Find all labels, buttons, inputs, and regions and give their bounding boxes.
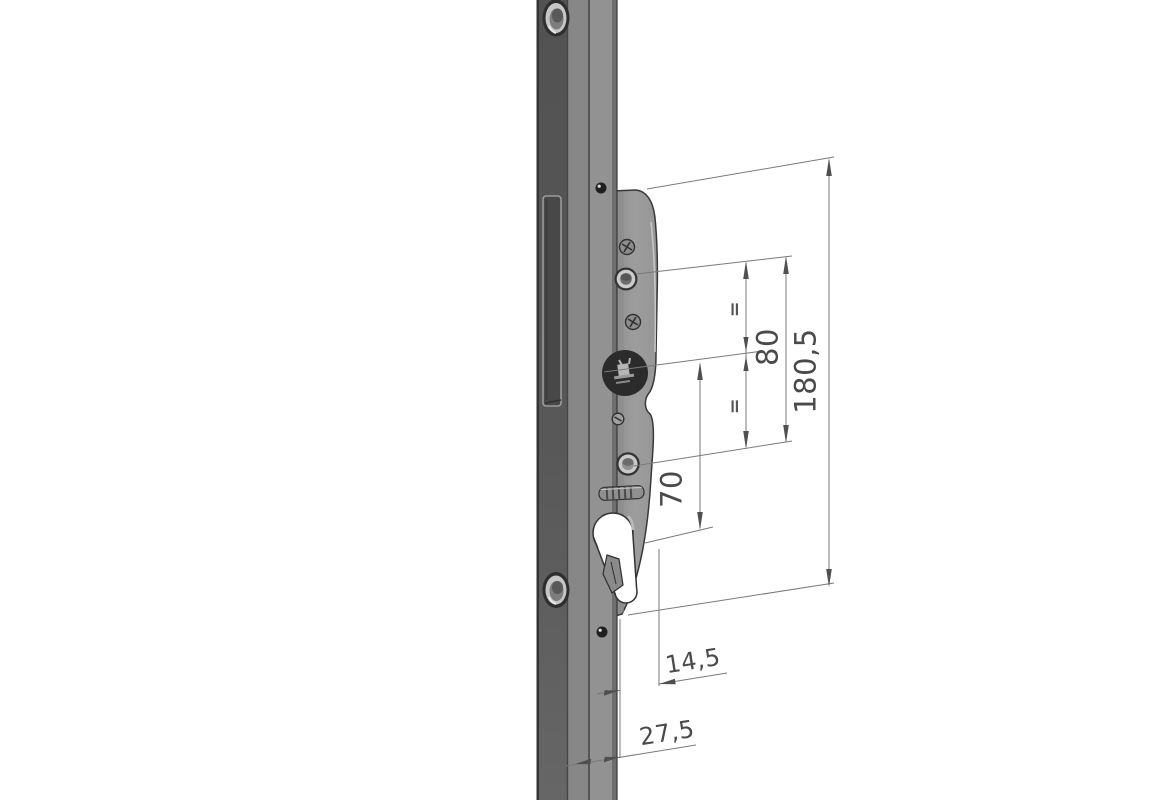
ext-line-lower-roller (634, 441, 792, 466)
bar-face-1 (567, 0, 589, 800)
dim-label-overall-height: 180,5 (792, 328, 821, 414)
profile-bar (537, 0, 618, 800)
dim-label-70: 70 (658, 470, 687, 508)
phillips-screw-mid (626, 315, 641, 330)
countersunk-hole-top (543, 0, 570, 37)
screw-small (612, 413, 624, 425)
lock-drawing (0, 0, 1164, 800)
ext-line-case-top (647, 157, 834, 189)
faceplate-slot (543, 196, 561, 406)
ribbed-spindle-pin (599, 485, 645, 500)
countersunk-hole-bottom (543, 572, 570, 608)
equality-mark-top: = (726, 301, 745, 317)
ext-line-cylinder (645, 527, 713, 543)
roller-hole-upper (615, 268, 638, 291)
roller-hole-lower (616, 452, 640, 476)
brand-logo-badge (602, 350, 648, 396)
technical-drawing-canvas: 180,5 80 70 = = 14,5 27,5 (0, 0, 1164, 800)
rivet-hole-upper (596, 183, 607, 194)
bar-front-edge (612, 0, 617, 800)
bar-face-2 (590, 0, 612, 800)
phillips-screw-top (620, 240, 635, 255)
equality-mark-bottom: = (726, 398, 745, 414)
dim-label-80: 80 (754, 328, 783, 366)
ext-line-upper-roller (636, 256, 792, 274)
rivet-hole-lower (597, 627, 608, 638)
